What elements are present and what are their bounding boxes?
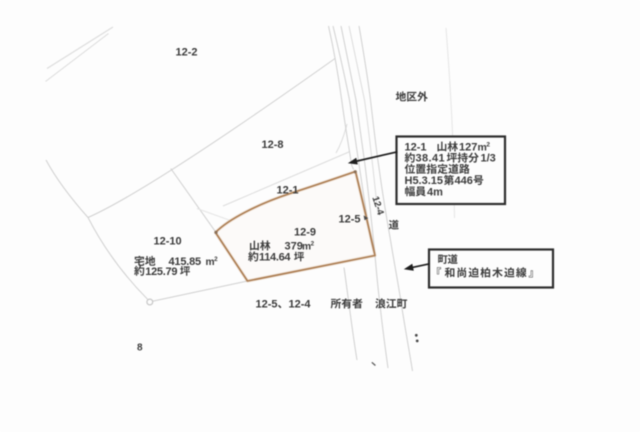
svg-text:446: 446	[455, 175, 473, 187]
svg-text:12-5: 12-5	[256, 299, 278, 311]
svg-text:2: 2	[311, 241, 315, 248]
svg-text:12-2: 12-2	[176, 47, 198, 59]
svg-text:1/3: 1/3	[481, 153, 496, 165]
svg-text:12-8: 12-8	[262, 139, 284, 151]
svg-text:127: 127	[459, 142, 477, 154]
svg-text:12-1: 12-1	[405, 142, 427, 154]
svg-text:12-10: 12-10	[154, 236, 182, 248]
svg-text:4m: 4m	[427, 186, 443, 198]
svg-text:38.41: 38.41	[416, 153, 446, 165]
svg-text:125.79: 125.79	[145, 266, 177, 278]
svg-text:12-9: 12-9	[294, 227, 316, 239]
svg-text:2: 2	[486, 142, 490, 149]
svg-text:H5.3.15: H5.3.15	[405, 175, 444, 187]
svg-text:12-1: 12-1	[277, 185, 299, 197]
svg-text:114.64: 114.64	[259, 252, 291, 264]
svg-text:12-5: 12-5	[339, 214, 361, 226]
svg-text:12-4: 12-4	[289, 299, 312, 311]
svg-text:2: 2	[214, 256, 218, 263]
svg-text:8: 8	[137, 343, 143, 354]
